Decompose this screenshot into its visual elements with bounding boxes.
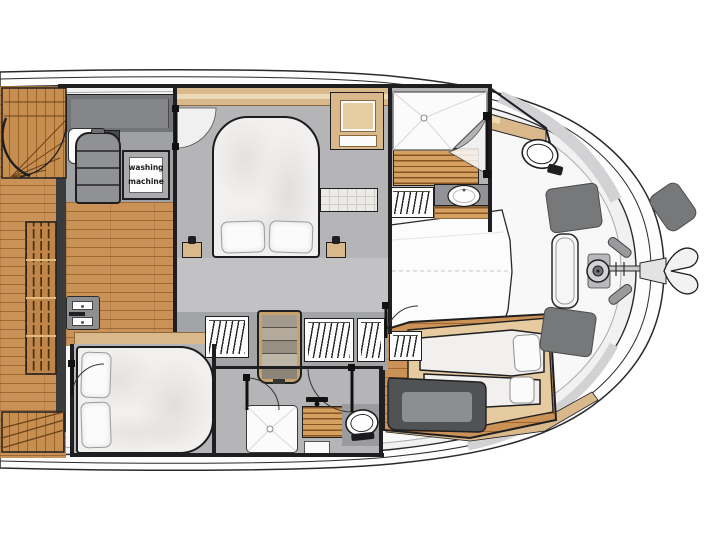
pillow — [510, 377, 534, 403]
sunpad — [545, 183, 603, 234]
yacht-lower-deck-floorplan: washing machine — [0, 0, 720, 540]
port-bulkhead-wall — [56, 176, 66, 432]
hanging-locker — [357, 318, 385, 362]
pillow — [220, 220, 265, 254]
vanity-drawer — [339, 135, 377, 147]
pillow — [80, 401, 112, 448]
owner-cabin-fwd-wall — [388, 84, 392, 334]
bathroom-wall — [379, 366, 383, 456]
guest-cabin-wall — [70, 344, 74, 456]
owner-cabin-platform — [176, 258, 388, 314]
center-dresser — [257, 310, 302, 384]
hanging-locker — [389, 187, 434, 218]
anchor-icon — [664, 248, 698, 294]
tufted-bench — [320, 188, 378, 212]
vanity-front — [434, 206, 490, 219]
drawer — [262, 341, 297, 354]
corridor-wall — [173, 84, 177, 332]
drawer-line — [77, 167, 119, 169]
electrical-panel — [66, 296, 100, 330]
fore-head-wall — [488, 86, 492, 232]
pillow — [268, 220, 313, 254]
vanity-mirror — [341, 101, 375, 131]
hanging-locker — [304, 318, 354, 362]
panel-handle — [69, 312, 85, 316]
nightstand — [326, 242, 346, 258]
cabinet-door — [71, 99, 169, 128]
toilet-alcove — [342, 404, 382, 446]
drawer-line — [77, 184, 119, 186]
pillow — [513, 334, 541, 372]
vanity-counter — [434, 184, 490, 206]
single-bed-upper — [420, 330, 544, 376]
switch-panel-icon — [72, 301, 93, 310]
clothes-hanger-icon — [308, 322, 350, 358]
bathroom-wall — [213, 366, 383, 369]
reading-lamp — [332, 236, 340, 244]
forward-wall — [58, 84, 492, 88]
drawer-handle — [91, 128, 105, 134]
vanity-unit — [330, 92, 384, 150]
shower-teak-floor — [393, 148, 479, 186]
reading-lamp — [188, 236, 196, 244]
washing-machine: washing machine — [122, 150, 170, 200]
switch-panel-icon — [72, 317, 93, 326]
clothes-hanger-icon — [393, 191, 430, 214]
shower-tray — [246, 405, 298, 453]
aft-wall — [70, 453, 384, 457]
chest-of-drawers — [75, 132, 121, 204]
sunpad — [539, 307, 597, 358]
pillow — [80, 351, 112, 398]
drawer — [262, 328, 297, 341]
drawer-handle — [273, 379, 285, 384]
washing-machine-label: washing machine — [129, 157, 163, 193]
clothes-hanger-icon — [361, 322, 381, 358]
drawer — [262, 315, 297, 328]
hanging-locker — [389, 331, 422, 361]
nightstand — [182, 242, 202, 258]
cabin-step-top — [402, 392, 472, 422]
drawer-line — [77, 150, 119, 152]
clothes-hanger-icon — [393, 335, 418, 357]
